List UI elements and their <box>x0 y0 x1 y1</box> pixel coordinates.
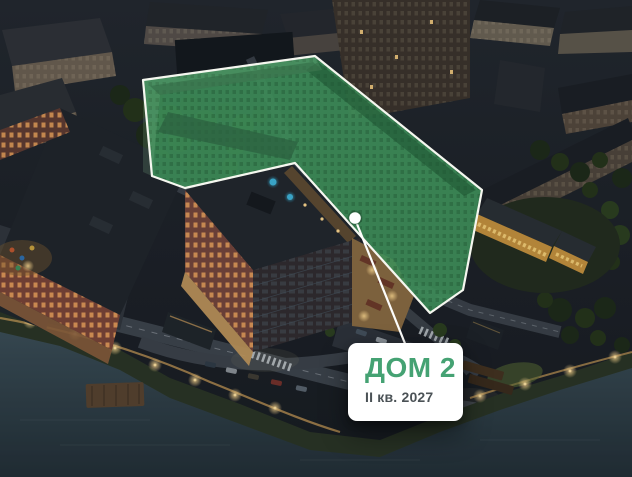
aerial-night-render <box>0 0 632 477</box>
location-marker-dot[interactable] <box>348 211 363 226</box>
callout-title: ДОМ 2 <box>365 354 455 382</box>
masterplan-view: ДОМ 2 II кв. 2027 <box>0 0 632 477</box>
dom-2-callout-card[interactable]: ДОМ 2 II кв. 2027 <box>348 343 463 421</box>
callout-subtitle: II кв. 2027 <box>365 390 455 404</box>
